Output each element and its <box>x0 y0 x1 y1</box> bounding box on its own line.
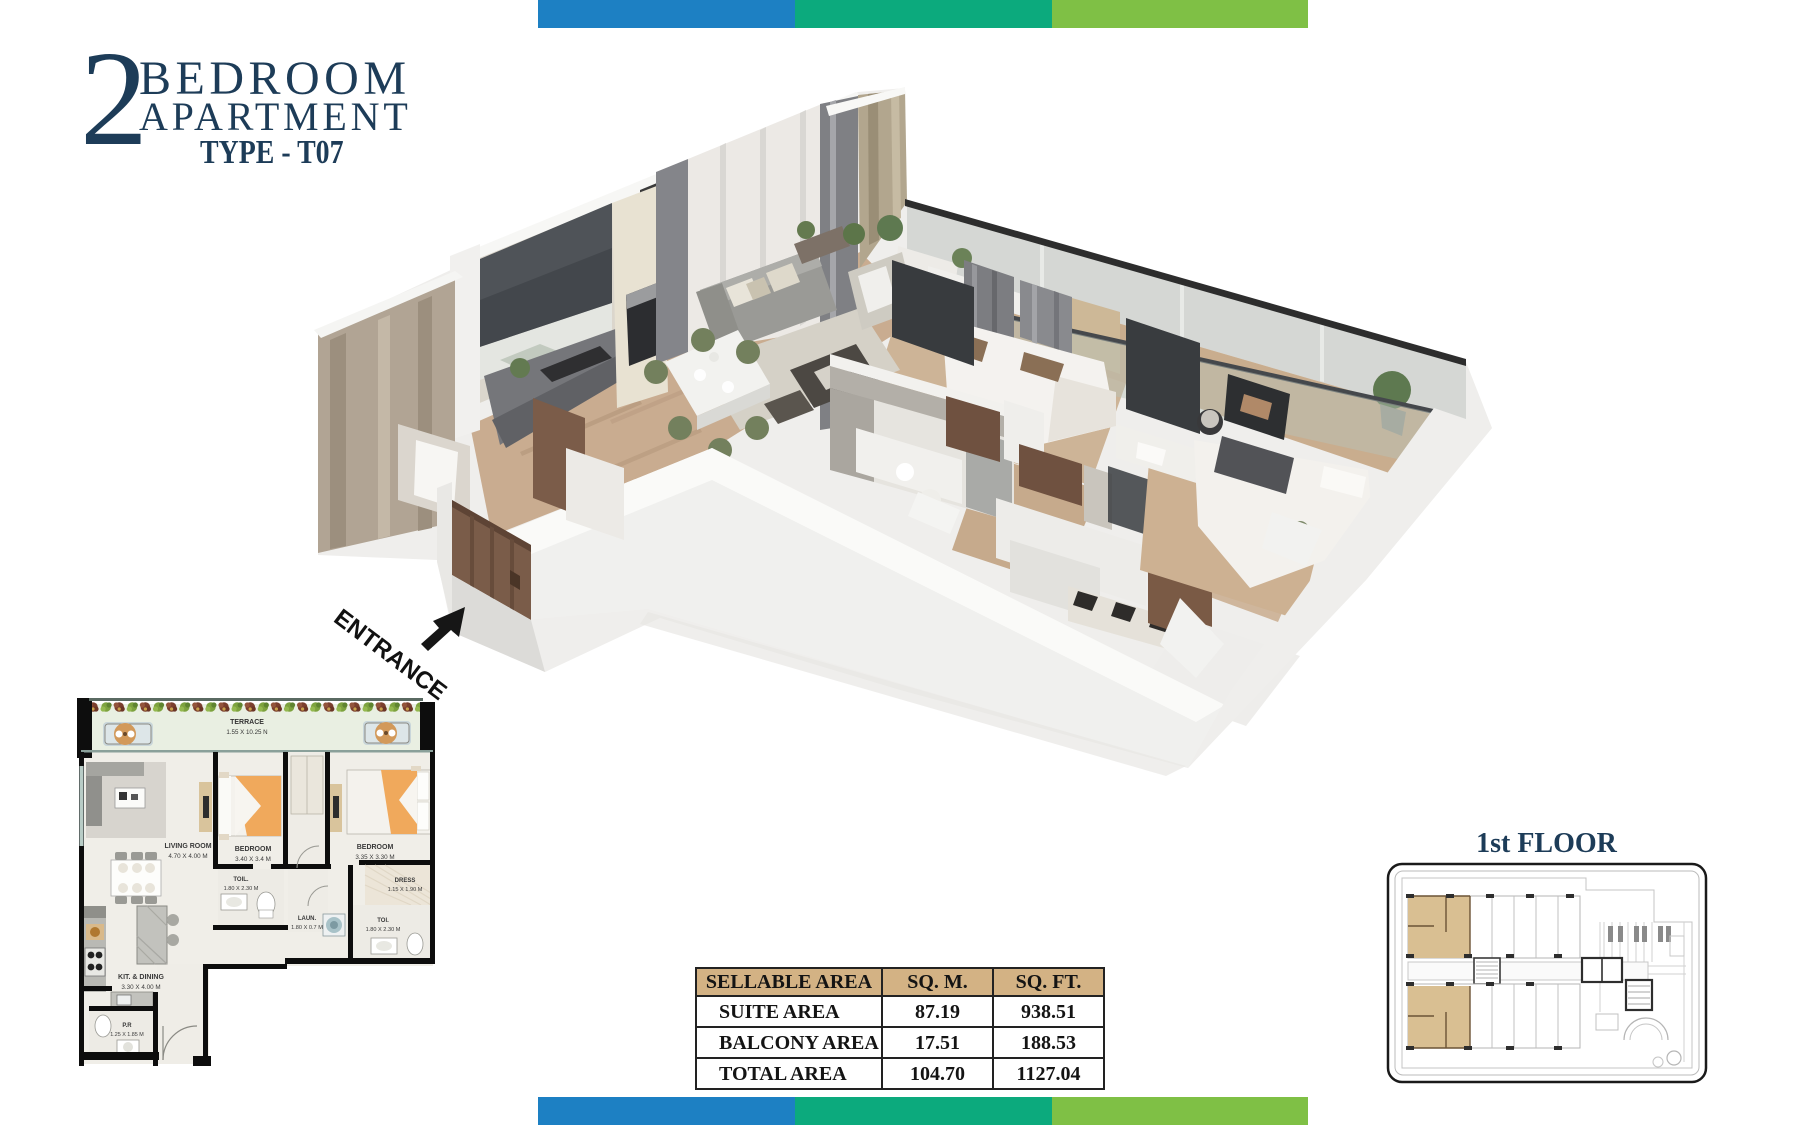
svg-text:LAUN.: LAUN. <box>298 916 317 922</box>
svg-text:1.80 X 0.7 M: 1.80 X 0.7 M <box>291 925 323 931</box>
svg-text:3.30 X 4.00 M: 3.30 X 4.00 M <box>121 984 160 991</box>
svg-text:3.35 X 3.30 M: 3.35 X 3.30 M <box>355 854 394 861</box>
svg-text:1.80 X 2.30 M: 1.80 X 2.30 M <box>366 927 401 933</box>
svg-text:KIT. & DINING: KIT. & DINING <box>118 974 164 981</box>
svg-text:TOI.: TOI. <box>377 918 389 924</box>
svg-text:BEDROOM: BEDROOM <box>235 846 272 853</box>
svg-text:1.80 X 2.30 M: 1.80 X 2.30 M <box>224 886 259 892</box>
svg-text:LIVING ROOM: LIVING ROOM <box>164 843 211 850</box>
svg-text:4.70 X 4.00 M: 4.70 X 4.00 M <box>168 853 207 860</box>
svg-text:BEDROOM: BEDROOM <box>357 844 394 851</box>
svg-text:1.55 X 10.25 N: 1.55 X 10.25 N <box>226 729 267 736</box>
svg-text:TERRACE: TERRACE <box>230 719 264 726</box>
svg-text:DRESS: DRESS <box>395 878 416 884</box>
svg-text:1.15 X 1.90 M: 1.15 X 1.90 M <box>388 887 423 893</box>
svg-text:P.R: P.R <box>122 1023 132 1029</box>
svg-text:1.25 X 1.85 M: 1.25 X 1.85 M <box>110 1032 144 1038</box>
svg-text:TOIL.: TOIL. <box>233 877 249 883</box>
svg-text:3.40 X 3.4 M: 3.40 X 3.4 M <box>235 856 271 863</box>
